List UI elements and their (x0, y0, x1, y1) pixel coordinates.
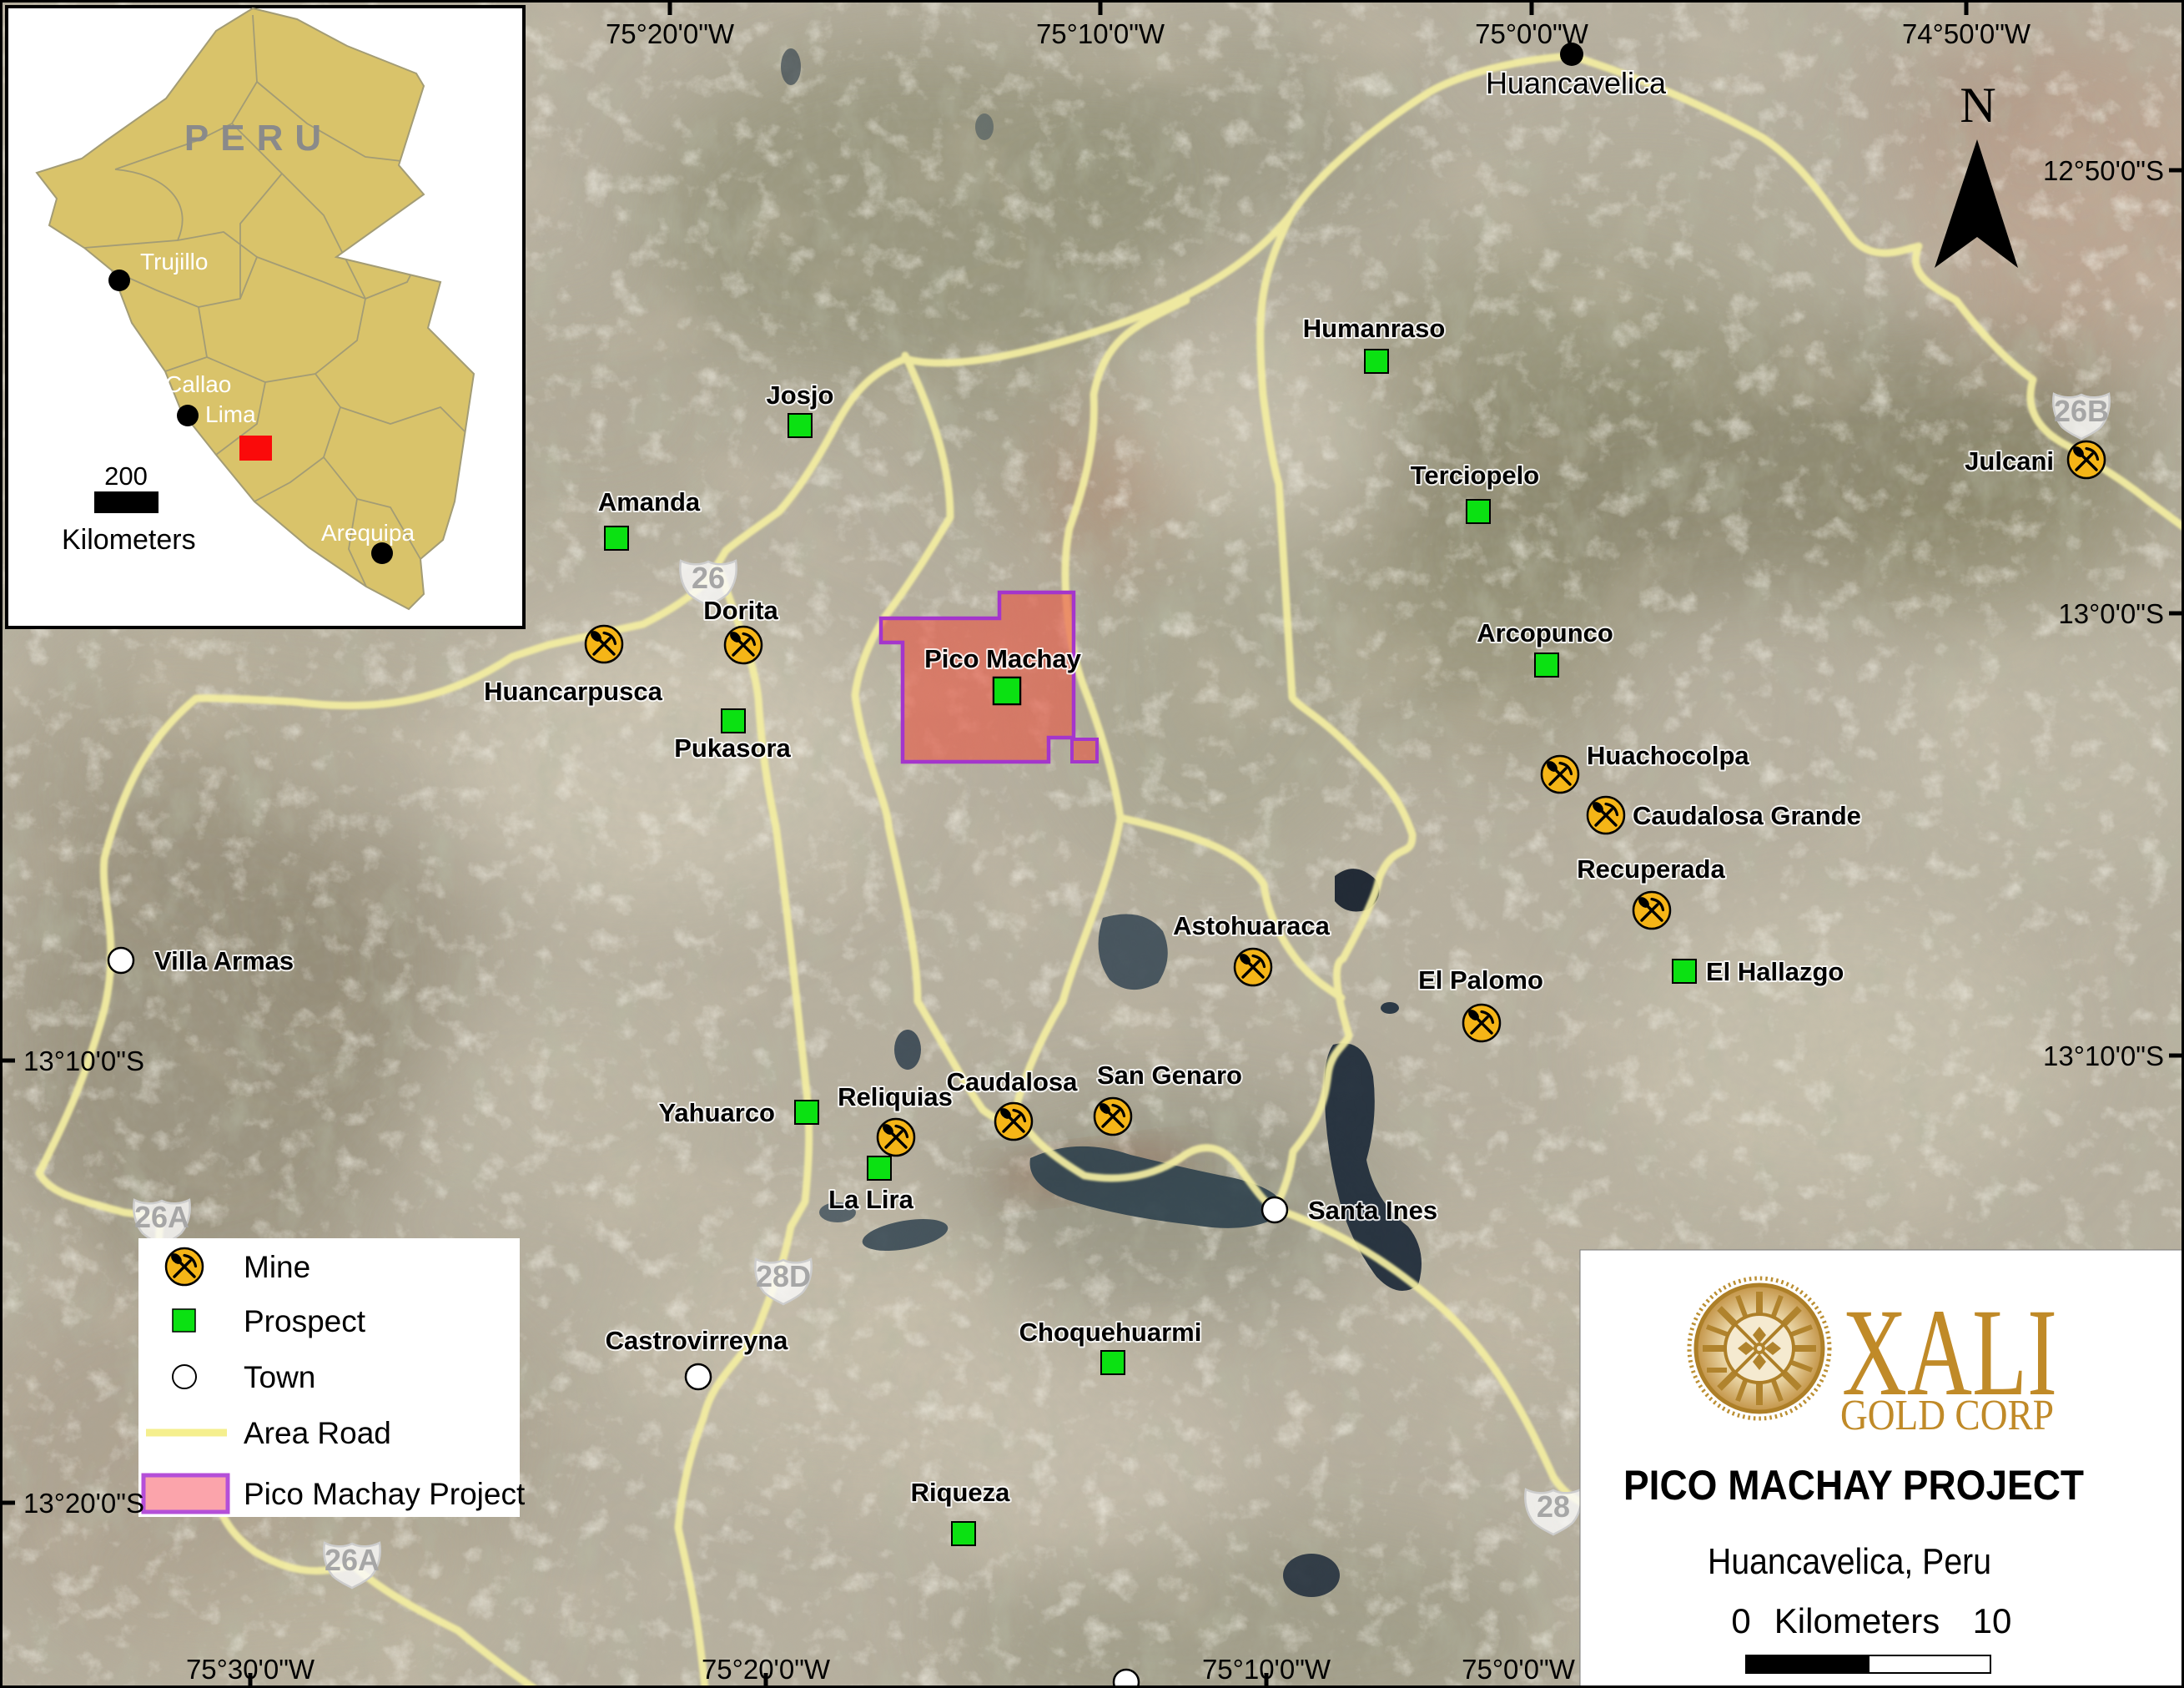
svg-text:26B: 26B (2054, 394, 2109, 428)
svg-text:Mine: Mine (244, 1250, 310, 1284)
svg-text:Lima: Lima (205, 401, 256, 427)
svg-text:Yahuarco: Yahuarco (658, 1098, 775, 1127)
svg-text:Dorita: Dorita (703, 596, 778, 625)
svg-text:Riqueza: Riqueza (911, 1478, 1011, 1507)
svg-text:Huancavelica: Huancavelica (1486, 66, 1667, 100)
svg-text:Huachocolpa: Huachocolpa (1587, 741, 1749, 770)
svg-text:Kilometers: Kilometers (1774, 1601, 1940, 1640)
svg-text:Town: Town (244, 1360, 315, 1394)
svg-text:75°30'0"W: 75°30'0"W (186, 1654, 315, 1685)
svg-text:Pico Machay Project: Pico Machay Project (244, 1477, 526, 1511)
svg-text:12°50'0"S: 12°50'0"S (2043, 155, 2164, 186)
svg-text:26A: 26A (325, 1543, 380, 1577)
svg-text:Santa Ines: Santa Ines (1308, 1196, 1437, 1225)
svg-text:Reliquias: Reliquias (838, 1082, 953, 1111)
svg-text:Kilometers: Kilometers (62, 524, 196, 556)
svg-text:Humanraso: Humanraso (1303, 314, 1446, 343)
svg-text:75°0'0"W: 75°0'0"W (1462, 1654, 1576, 1685)
svg-text:74°50'0"W: 74°50'0"W (1902, 18, 2031, 49)
svg-text:75°0'0"W: 75°0'0"W (1475, 18, 1589, 49)
svg-text:Pico Machay: Pico Machay (924, 644, 1082, 673)
svg-text:Castrovirreyna: Castrovirreyna (606, 1326, 789, 1355)
svg-text:75°20'0"W: 75°20'0"W (702, 1654, 831, 1685)
svg-text:Pukasora: Pukasora (674, 733, 791, 763)
svg-text:Area Road: Area Road (244, 1416, 391, 1450)
svg-text:Recuperada: Recuperada (1577, 854, 1725, 884)
svg-text:75°10'0"W: 75°10'0"W (1202, 1654, 1331, 1685)
svg-text:26: 26 (692, 561, 725, 595)
svg-text:13°0'0"S: 13°0'0"S (2058, 598, 2164, 629)
svg-text:13°10'0"S: 13°10'0"S (2043, 1041, 2164, 1071)
svg-text:Caudalosa: Caudalosa (947, 1067, 1079, 1096)
svg-text:Arcopunco: Arcopunco (1477, 618, 1613, 647)
svg-text:200: 200 (104, 461, 148, 491)
svg-text:Huancavelica, Peru: Huancavelica, Peru (1708, 1541, 1991, 1582)
svg-text:28D: 28D (756, 1259, 811, 1293)
svg-text:La Lira: La Lira (828, 1185, 913, 1214)
svg-text:Josjo: Josjo (767, 380, 834, 410)
svg-text:75°10'0"W: 75°10'0"W (1036, 18, 1165, 49)
svg-text:Arequipa: Arequipa (321, 520, 415, 546)
svg-text:Callao: Callao (165, 371, 231, 397)
svg-text:Terciopelo: Terciopelo (1411, 461, 1539, 490)
svg-text:Villa Armas: Villa Armas (154, 946, 294, 975)
svg-text:0: 0 (1731, 1601, 1750, 1640)
svg-text:Prospect: Prospect (244, 1304, 366, 1338)
svg-text:Astohuaraca: Astohuaraca (1173, 911, 1331, 940)
svg-text:13°20'0"S: 13°20'0"S (23, 1488, 144, 1519)
svg-text:Amanda: Amanda (598, 487, 701, 516)
svg-text:El Palomo: El Palomo (1418, 965, 1543, 995)
svg-text:San Genaro: San Genaro (1097, 1061, 1242, 1090)
svg-text:Huancarpusca: Huancarpusca (484, 677, 662, 706)
svg-text:Trujillo: Trujillo (140, 249, 208, 275)
svg-text:N: N (1960, 78, 1995, 133)
svg-text:75°20'0"W: 75°20'0"W (606, 18, 735, 49)
svg-text:El Hallazgo: El Hallazgo (1706, 957, 1844, 986)
svg-text:Julcani: Julcani (1965, 446, 2054, 476)
svg-text:10: 10 (1973, 1601, 2012, 1640)
svg-text:Caudalosa Grande: Caudalosa Grande (1633, 801, 1861, 830)
svg-text:26A: 26A (134, 1200, 189, 1234)
svg-text:PERU: PERU (184, 118, 333, 159)
svg-text:PICO MACHAY PROJECT: PICO MACHAY PROJECT (1623, 1462, 2084, 1509)
svg-text:GOLD CORP: GOLD CORP (1840, 1392, 2054, 1439)
svg-text:13°10'0"S: 13°10'0"S (23, 1046, 144, 1076)
svg-text:Choquehuarmi: Choquehuarmi (1019, 1318, 1202, 1347)
svg-text:28: 28 (1537, 1489, 1570, 1524)
